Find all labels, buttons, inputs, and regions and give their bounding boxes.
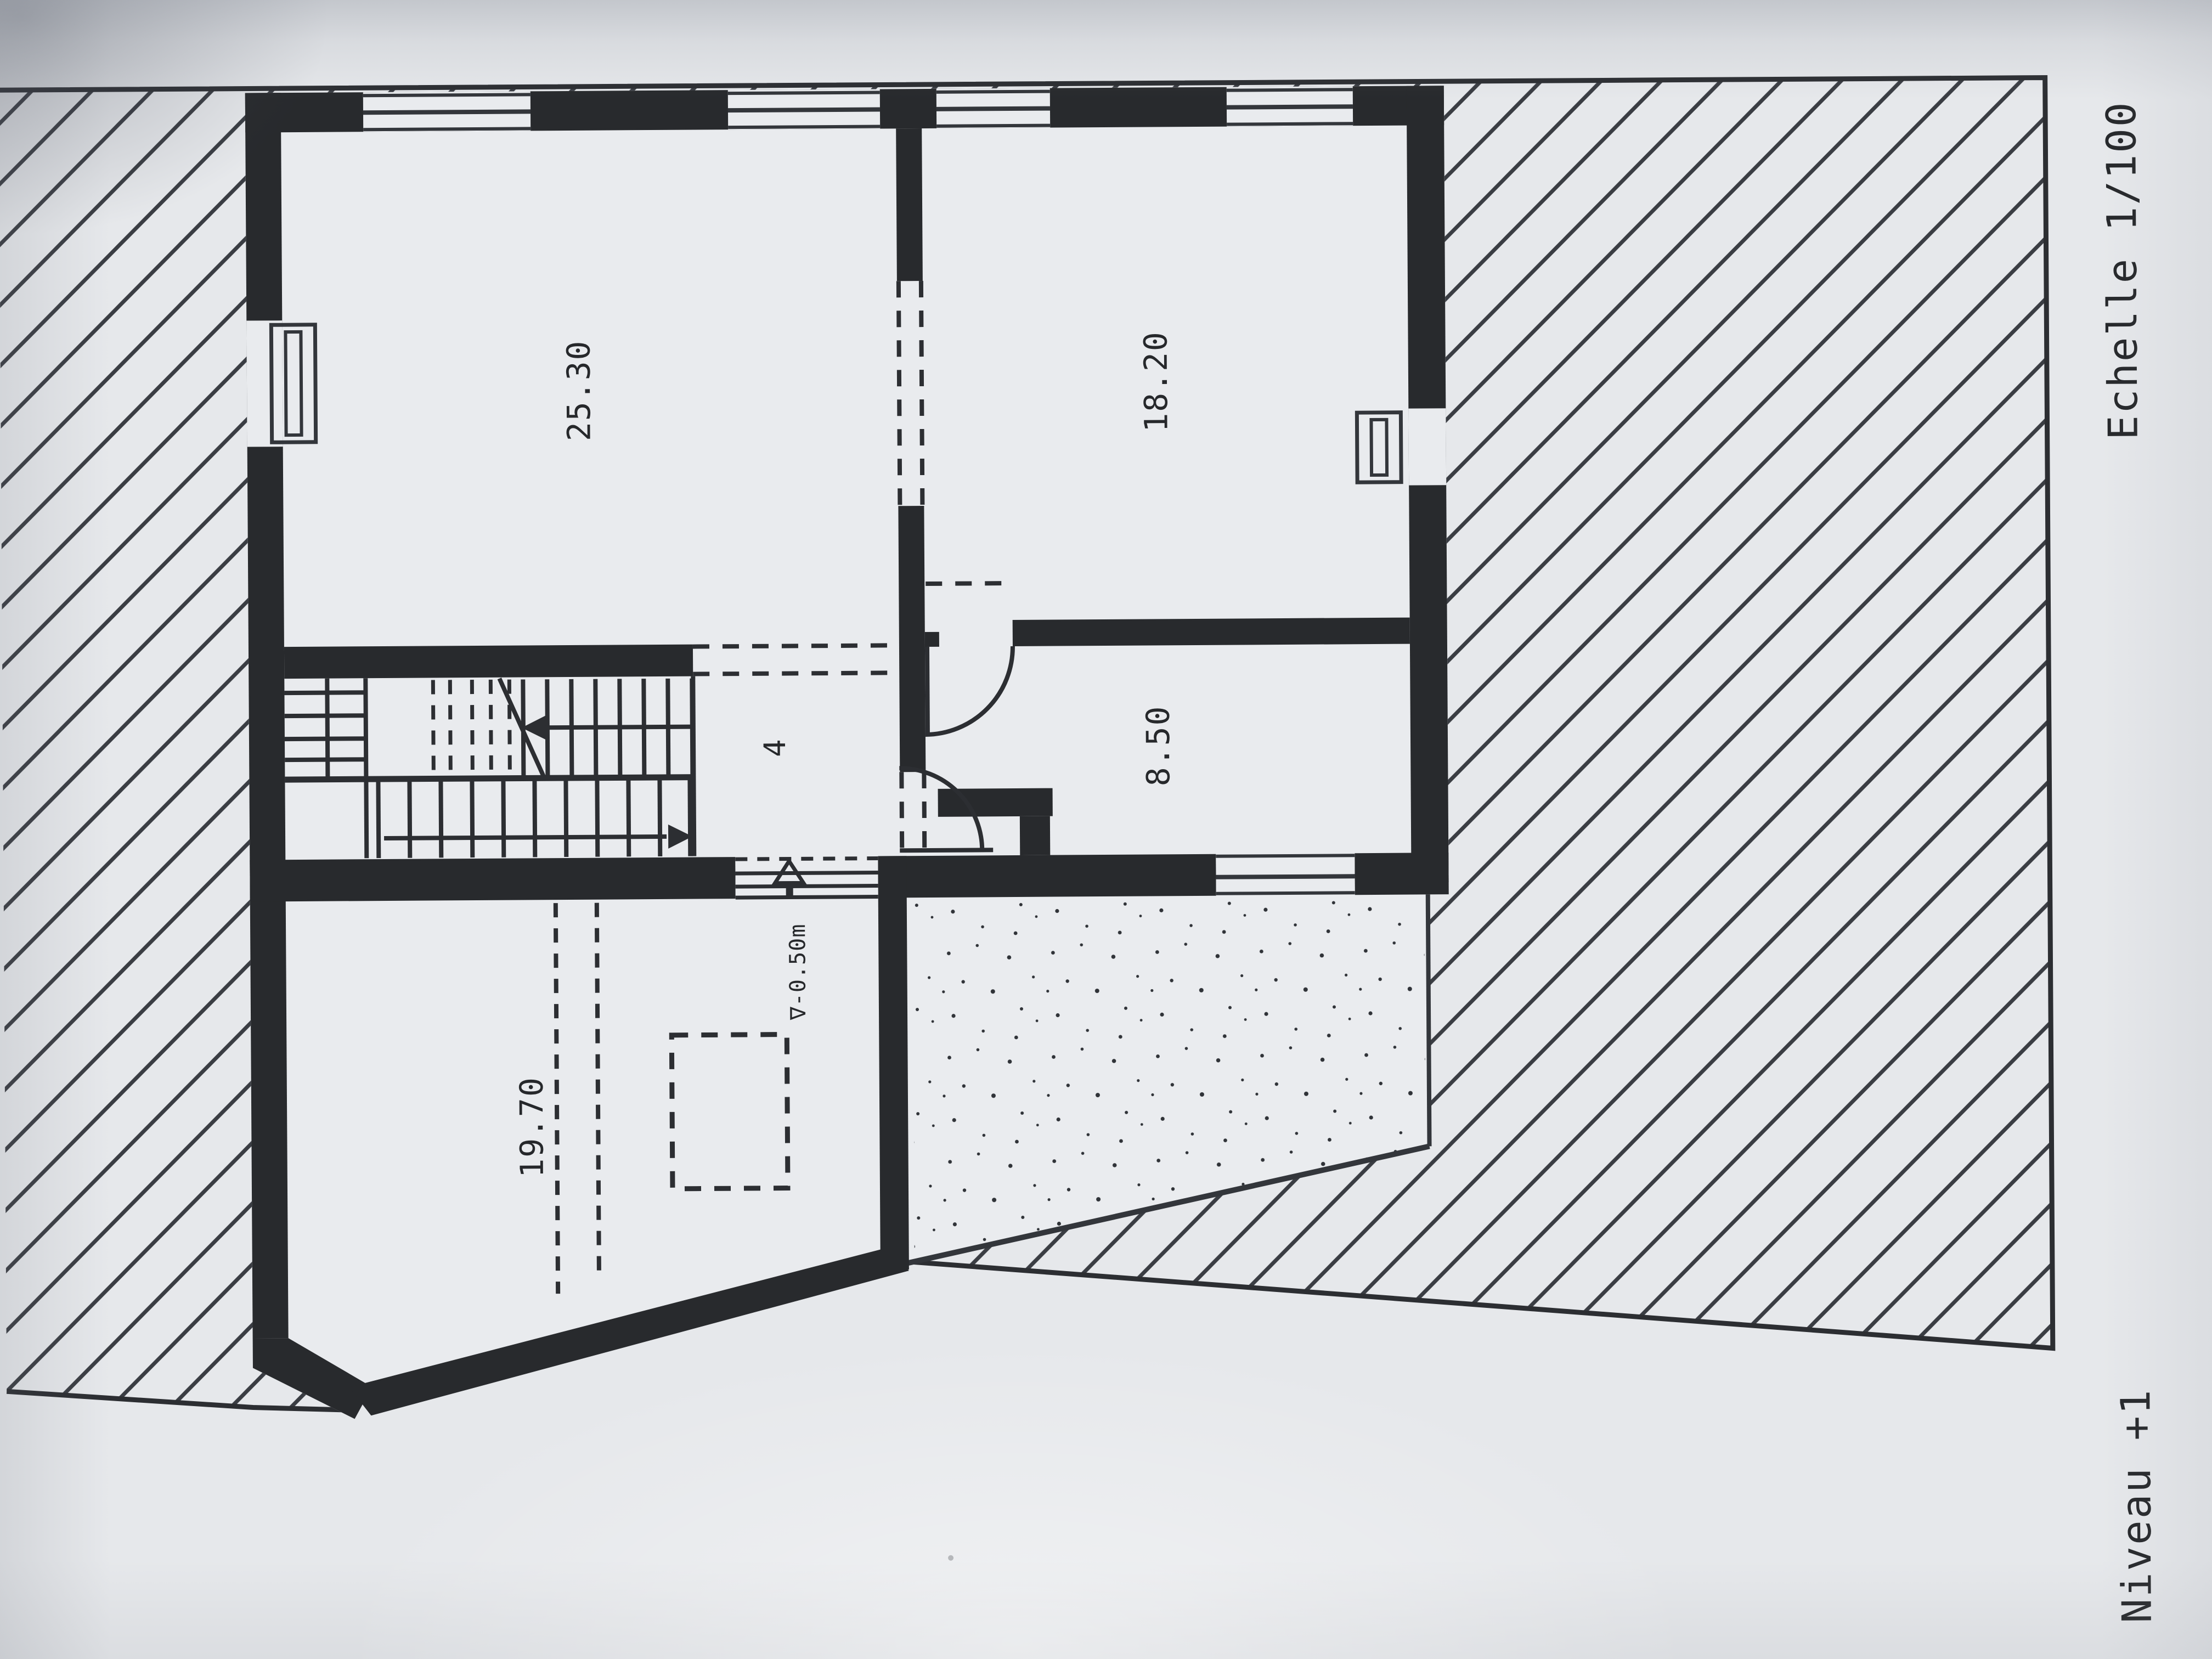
room-area-label: 8.50: [1139, 705, 1177, 786]
window-icon: [728, 89, 880, 129]
room-area-label: 25.30: [560, 340, 598, 441]
window-icon: [1357, 408, 1446, 486]
room-area-label: 19.70: [513, 1076, 551, 1178]
level-title: Niveau +1: [2112, 1388, 2161, 1623]
window-icon: [1227, 86, 1353, 126]
window-icon: [363, 91, 531, 132]
photographed-floor-plan: 25.30 18.20 8.50 19.70 4 ∇-0.50m Echelle…: [0, 0, 2212, 1659]
room-area-label: 18.20: [1137, 331, 1175, 432]
window-icon: [936, 88, 1050, 128]
entry-level-label: ∇-0.50m: [785, 924, 811, 1021]
entry-steps: [735, 856, 878, 899]
hall-number-label: 4: [758, 739, 792, 757]
scale-label: Echelle 1/100: [2098, 100, 2147, 440]
paper-speck: [948, 1555, 953, 1561]
floor-plan-drawing: 25.30 18.20 8.50 19.70 4 ∇-0.50m Echelle…: [0, 0, 2212, 1659]
window-icon: [1216, 853, 1355, 896]
